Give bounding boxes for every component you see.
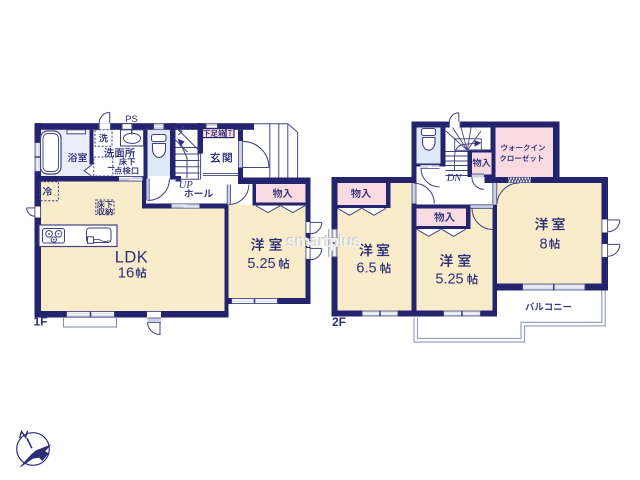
svg-text:T: T: [227, 128, 232, 138]
svg-text:smartplus: smartplus: [287, 232, 361, 251]
svg-text:8: 8: [539, 236, 547, 252]
svg-text:5.25: 5.25: [435, 272, 463, 288]
svg-text:PS: PS: [125, 114, 138, 125]
svg-text:5.25: 5.25: [247, 256, 275, 272]
svg-text:UP: UP: [179, 180, 194, 191]
svg-text:DN: DN: [446, 173, 463, 184]
svg-text:1F: 1F: [34, 315, 48, 329]
svg-text:16: 16: [118, 265, 135, 282]
svg-text:6.5: 6.5: [356, 261, 376, 277]
svg-text:2F: 2F: [332, 315, 346, 329]
